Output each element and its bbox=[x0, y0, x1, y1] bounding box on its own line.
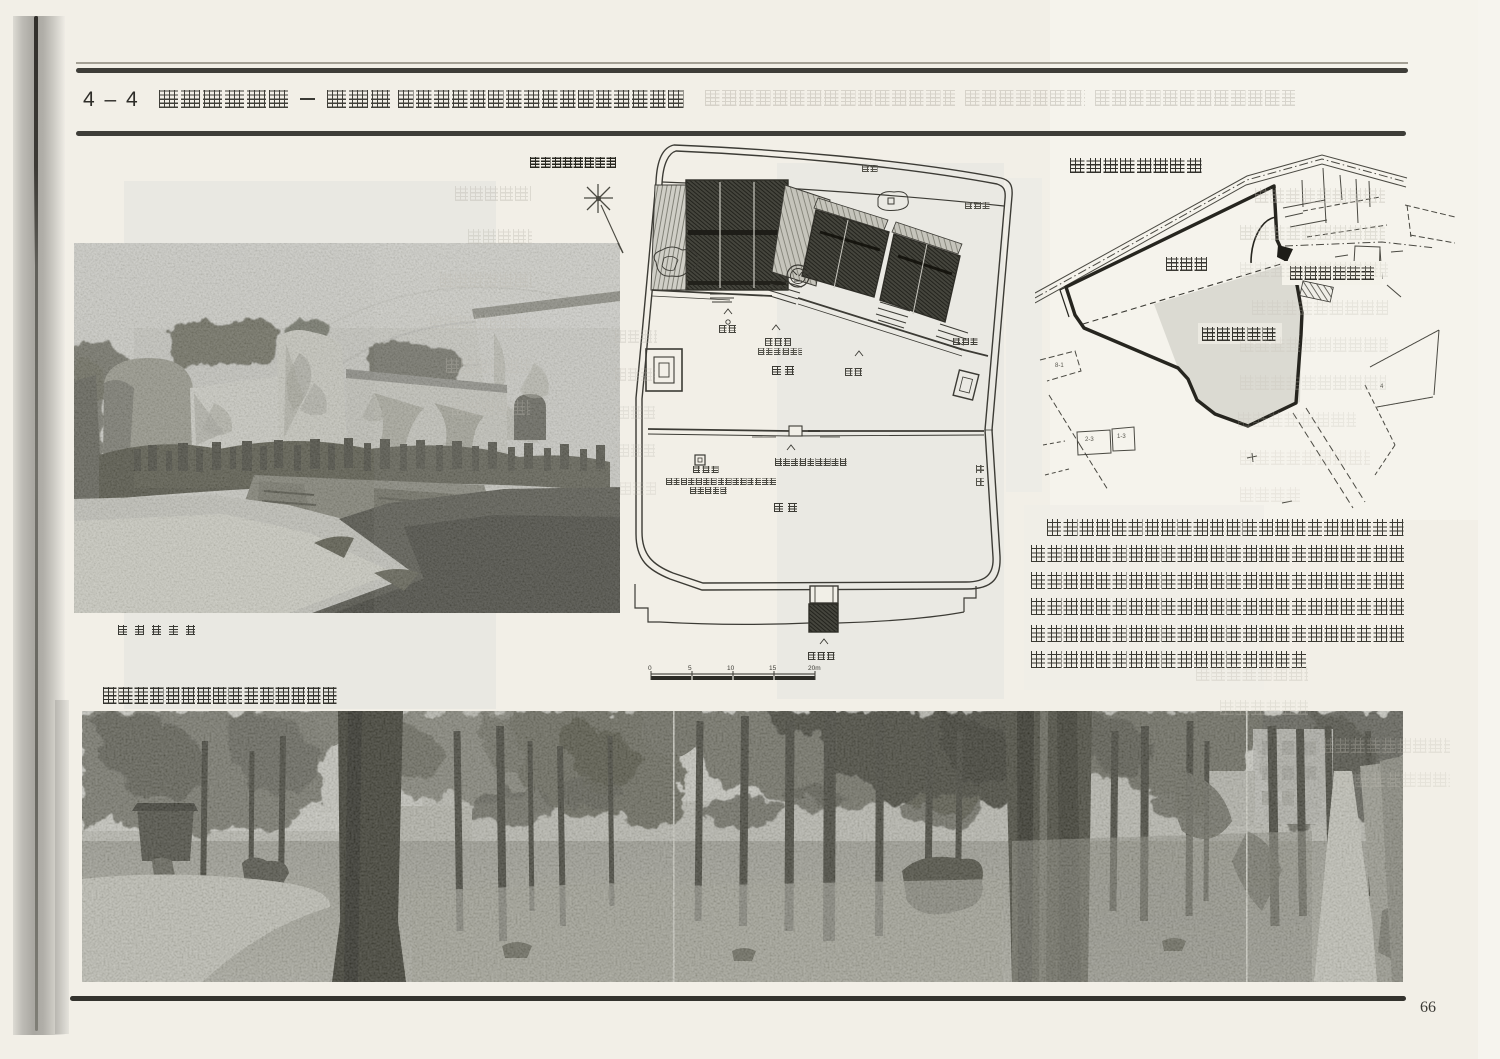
svg-text:8-1: 8-1 bbox=[1055, 363, 1064, 369]
svg-text:15: 15 bbox=[769, 665, 777, 672]
svg-text:5: 5 bbox=[688, 665, 692, 672]
svg-text:10: 10 bbox=[727, 665, 735, 672]
svg-text:20m: 20m bbox=[808, 665, 821, 672]
svg-text:2-3: 2-3 bbox=[1085, 437, 1094, 443]
svg-text:0: 0 bbox=[648, 665, 652, 672]
svg-text:1-3: 1-3 bbox=[1117, 434, 1126, 440]
